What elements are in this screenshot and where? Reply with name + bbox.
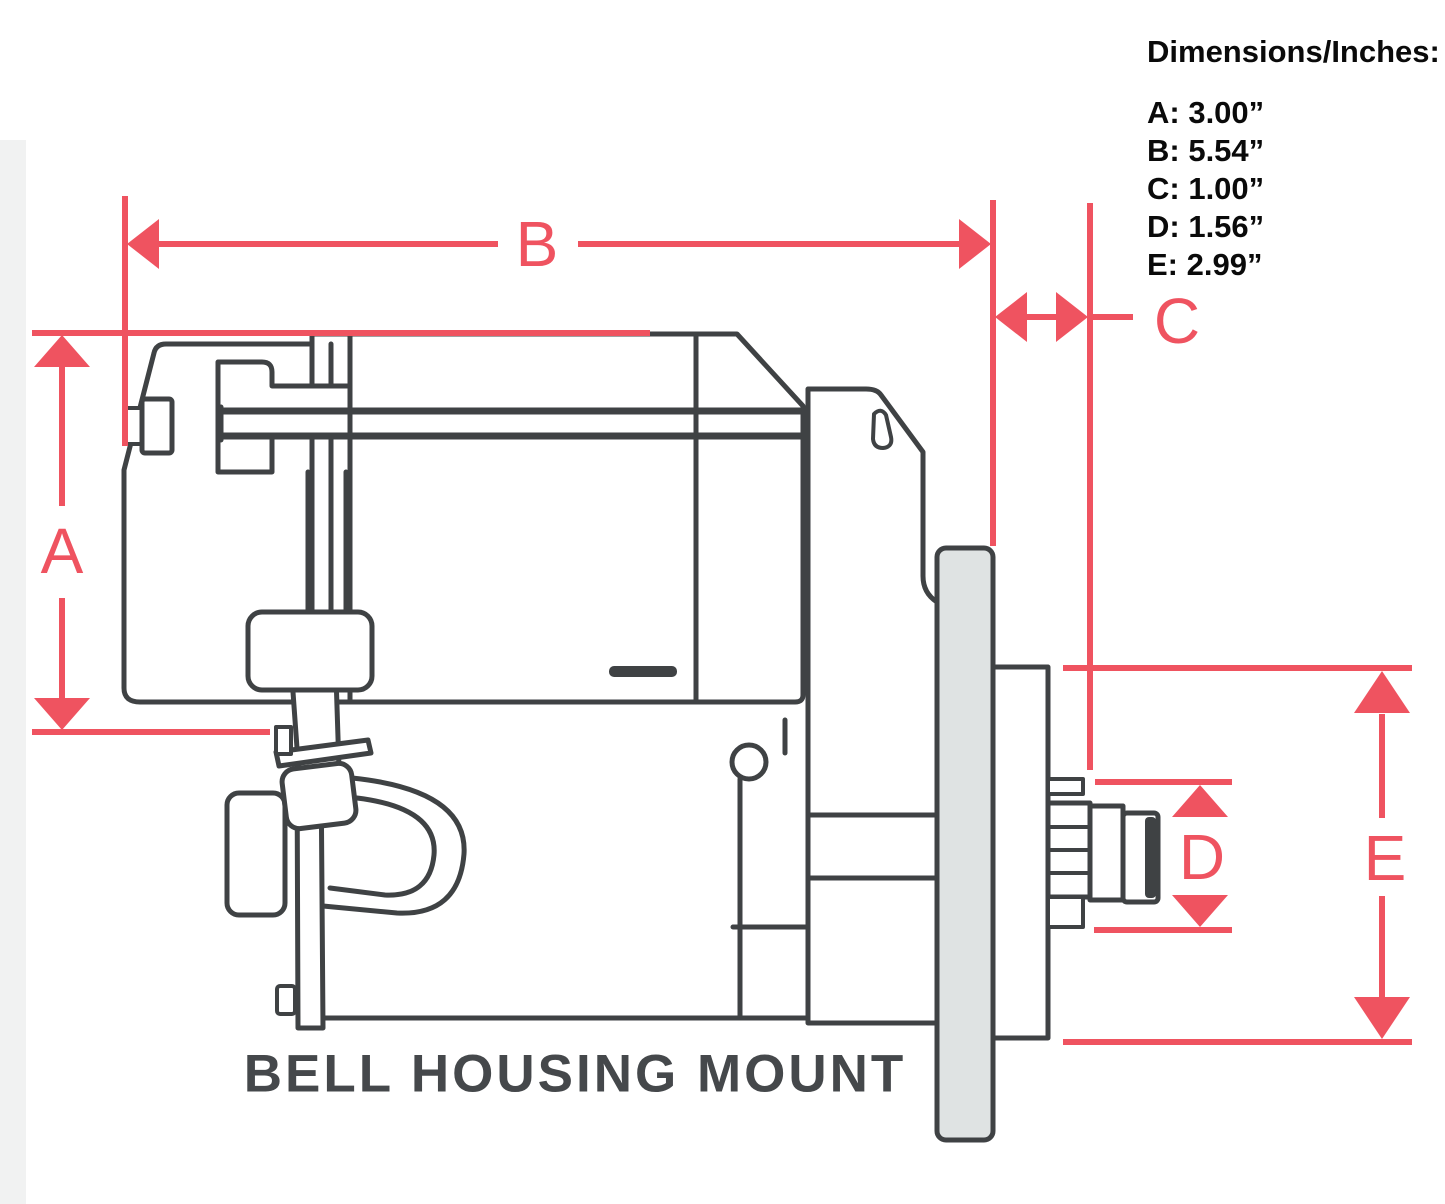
band-side-block — [276, 727, 291, 754]
dim-a-arrow-down — [34, 698, 90, 730]
dim-b-arrow-right — [959, 219, 991, 269]
nose-housing — [993, 667, 1048, 1038]
shaft-end-cap-dark — [1145, 817, 1156, 898]
solenoid-body — [312, 334, 803, 702]
dimensions-panel: Dimensions/Inches: A: 3.00” B: 5.54” C: … — [1147, 34, 1440, 284]
dim-label-c: C — [1154, 289, 1200, 353]
bell-housing-and-pinion — [937, 548, 1158, 1140]
dim-label-b: B — [516, 212, 559, 276]
dim-a-arrow-up — [34, 335, 90, 367]
lever-pivot-block — [248, 612, 372, 690]
bolt-hole — [732, 745, 766, 779]
dim-c-arrow-left — [995, 292, 1027, 342]
dim-label-a: A — [41, 519, 84, 583]
dimension-entry-d: D: 1.56” — [1147, 208, 1440, 246]
strap-bolt — [277, 986, 295, 1014]
dim-d-arrow-up — [1172, 785, 1228, 817]
diagram-page: A B C D E Dimensions/Inches: A: 3.00” B:… — [0, 0, 1445, 1204]
gear-tooth-top — [1048, 779, 1083, 794]
dim-c-arrow-right — [1056, 292, 1088, 342]
dimension-entry-a: A: 3.00” — [1147, 94, 1440, 132]
dimension-entry-e: E: 2.99” — [1147, 246, 1440, 284]
bell-housing-flange — [937, 548, 993, 1140]
dimension-entry-b: B: 5.54” — [1147, 132, 1440, 170]
dim-d-arrow-down — [1172, 895, 1228, 927]
dim-e-arrow-down — [1354, 997, 1410, 1039]
dim-e-arrow-up — [1354, 671, 1410, 713]
dim-label-d: D — [1179, 825, 1225, 889]
pinion-shaft — [1090, 806, 1123, 900]
terminal-bolt-head — [142, 399, 172, 453]
dim-label-e: E — [1364, 826, 1407, 890]
gear-tooth-bottom — [1048, 897, 1083, 927]
dimension-entry-c: C: 1.00” — [1147, 170, 1440, 208]
dimensions-panel-heading: Dimensions/Inches: — [1147, 34, 1440, 70]
dimensions-list: A: 3.00” B: 5.54” C: 1.00” D: 1.56” E: 2… — [1147, 94, 1440, 284]
dim-b-arrow-left — [127, 219, 159, 269]
lever-pad — [281, 762, 358, 830]
vent-slot — [609, 666, 677, 677]
foot-block — [227, 793, 285, 915]
drive-end-housing — [808, 389, 937, 1023]
diagram-caption: BELL HOUSING MOUNT — [244, 1044, 907, 1105]
